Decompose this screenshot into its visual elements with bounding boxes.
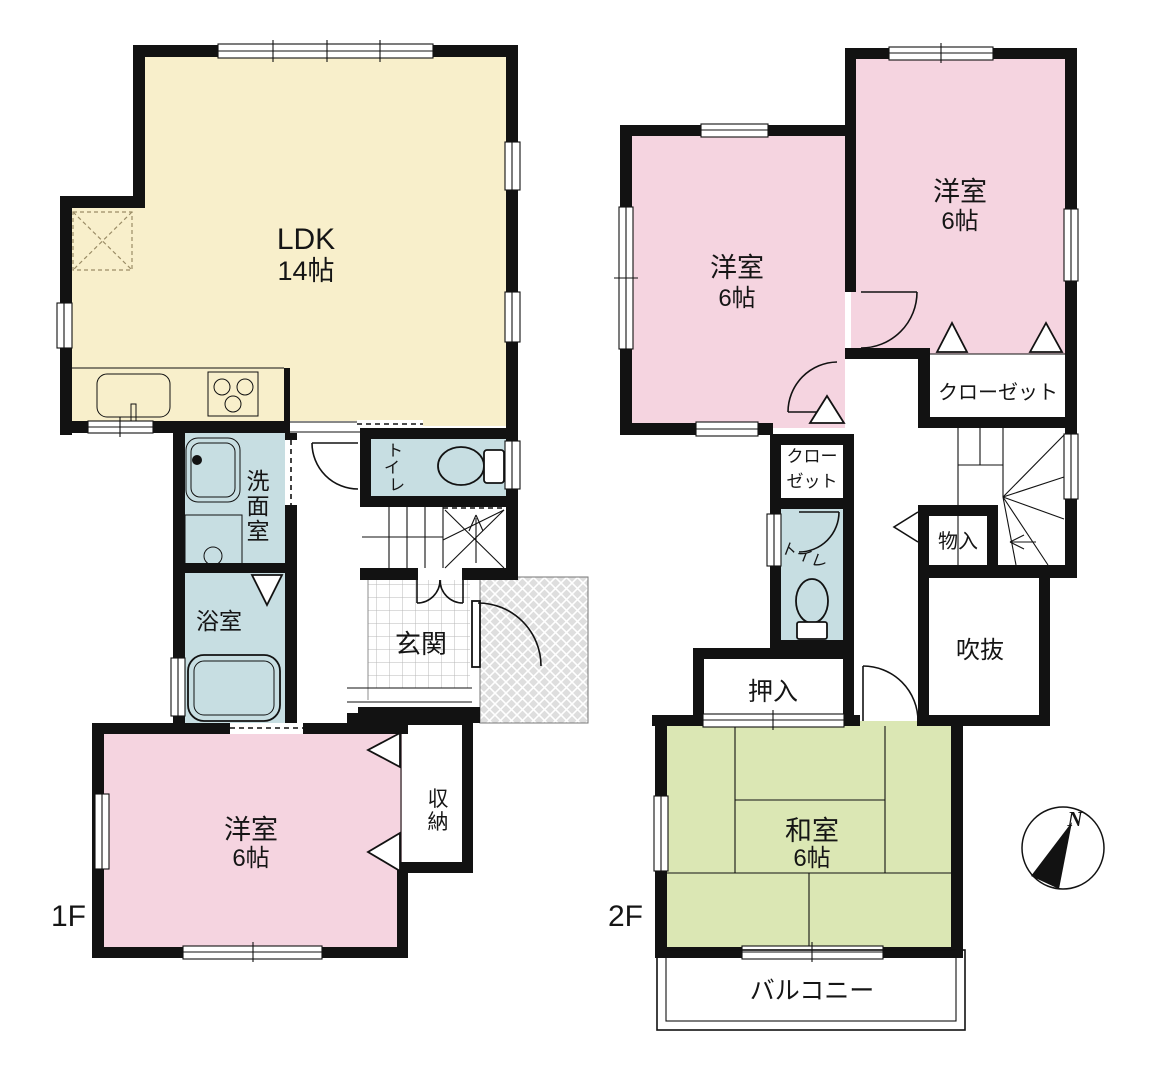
floor1-plan: LDK 14帖 洗 面 室 ト イ レ 浴室 玄関 洋室 6帖 収 納 1F [51, 40, 588, 962]
label-japanese-room: 和室 [785, 816, 839, 846]
label-ldk: LDK [277, 223, 335, 256]
svg-text:レ: レ [389, 477, 405, 494]
window [1064, 434, 1078, 499]
svg-text:6帖: 6帖 [793, 845, 830, 872]
svg-text:6帖: 6帖 [232, 845, 269, 872]
floorplan-page: LDK 14帖 洗 面 室 ト イ レ 浴室 玄関 洋室 6帖 収 納 1F [0, 0, 1170, 1074]
label-bedroom2-left: 洋室 [710, 253, 764, 283]
window [889, 43, 993, 63]
label-washroom: 洗 [247, 468, 270, 494]
label-floor1: 1F [51, 900, 86, 933]
window [57, 303, 72, 348]
window [505, 142, 520, 190]
compass-north-label: N [1066, 807, 1083, 831]
window [696, 422, 758, 436]
label-closet-small: クロー [787, 447, 838, 466]
svg-text:室: 室 [247, 518, 270, 544]
window [701, 124, 768, 137]
label-monoire: 物入 [938, 530, 978, 553]
label-bedroom2-right: 洋室 [933, 177, 987, 207]
label-entrance: 玄関 [395, 629, 447, 659]
window [1064, 209, 1078, 281]
stairs-1f [362, 507, 506, 568]
label-storage-1f: 収 [428, 788, 449, 811]
floorplan-drawing: LDK 14帖 洗 面 室 ト イ レ 浴室 玄関 洋室 6帖 収 納 1F [0, 0, 1170, 1074]
window [95, 794, 109, 869]
window [654, 796, 668, 871]
label-closet-main: クローゼット [938, 381, 1058, 404]
label-bath: 浴室 [196, 608, 242, 634]
label-void: 吹抜 [956, 637, 1004, 664]
svg-text:ゼット: ゼット [787, 472, 838, 491]
window [171, 658, 185, 716]
sliding-door-oshiire [703, 710, 844, 730]
door-japanese-room [863, 666, 918, 721]
label-bedroom-1f: 洋室 [224, 815, 278, 845]
label-oshiire: 押入 [748, 678, 798, 706]
label-toilet-1f: ト [387, 443, 403, 460]
window [767, 514, 781, 566]
label-floor2: 2F [608, 900, 643, 933]
svg-text:面: 面 [247, 493, 270, 519]
door-ldk-hall [312, 443, 358, 489]
svg-text:6帖: 6帖 [718, 285, 755, 312]
svg-text:納: 納 [428, 811, 449, 834]
svg-text:6帖: 6帖 [941, 208, 978, 235]
svg-text:イ: イ [384, 460, 400, 477]
compass: N [1022, 807, 1104, 889]
label-balcony: バルコニー [750, 977, 875, 1005]
floor2-plan: 洋室 6帖 洋室 6帖 クローゼット クロー ゼット トイレ 物入 吹抜 押入 … [608, 43, 1078, 1030]
door-monoire-fold [894, 512, 918, 542]
window [505, 441, 520, 489]
window [505, 292, 520, 342]
label-ldk-size: 14帖 [277, 256, 334, 286]
